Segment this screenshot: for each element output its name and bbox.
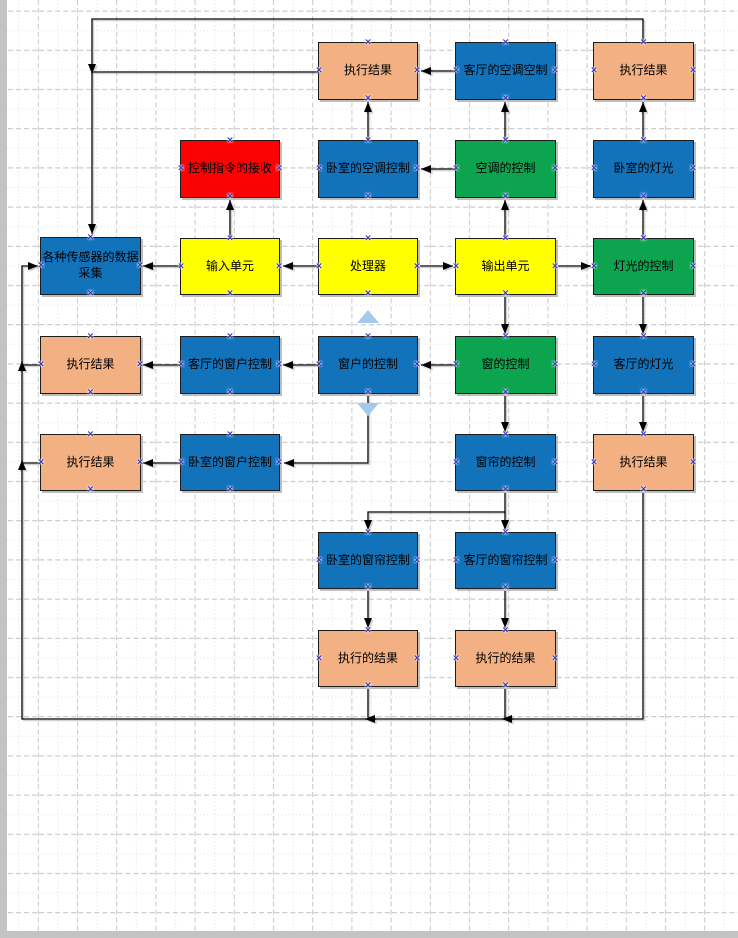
node-input-unit[interactable]: 输入单元×××× <box>180 238 280 295</box>
node-label: 客厅的窗户控制 <box>188 357 272 373</box>
node-bedroom-ac-control[interactable]: 卧室的空调控制×××× <box>318 140 418 198</box>
node-label: 执行结果 <box>66 455 114 471</box>
node-label: 执行的结果 <box>338 651 398 667</box>
node-ac-control[interactable]: 空调的控制×××× <box>455 140 556 198</box>
node-label: 输入单元 <box>206 259 254 275</box>
node-label: 卧室的窗帘控制 <box>326 553 410 569</box>
node-bedroom-window-control[interactable]: 卧室的窗户控制×××× <box>180 434 280 491</box>
node-exec-result-curtain[interactable]: 执行结果×××× <box>593 434 694 491</box>
node-living-window-control[interactable]: 客厅的窗户控制×××× <box>180 336 280 394</box>
node-living-light[interactable]: 客厅的灯光×××× <box>593 336 694 394</box>
drawing-page[interactable]: 执行结果××××客厅的空调空制××××执行结果××××控制指令的接收××××卧室… <box>0 0 738 938</box>
node-label: 执行结果 <box>344 63 392 79</box>
node-exec-result-window-living[interactable]: 执行结果×××× <box>40 336 141 394</box>
node-label: 执行结果 <box>619 63 667 79</box>
node-label: 客厅的窗帘控制 <box>463 553 547 569</box>
node-living-room-ac-control[interactable]: 客厅的空调空制×××× <box>455 42 556 100</box>
node-living-curtain-control[interactable]: 客厅的窗帘控制×××× <box>455 532 556 589</box>
node-label: 灯光的控制 <box>613 259 673 275</box>
node-exec-result-window-bedroom[interactable]: 执行结果×××× <box>40 434 141 491</box>
node-output-unit[interactable]: 输出单元×××× <box>455 238 556 295</box>
node-label: 控制指令的接收 <box>188 161 272 177</box>
node-bedroom-curtain-control[interactable]: 卧室的窗帘控制×××× <box>318 532 418 589</box>
node-label: 卧室的灯光 <box>613 161 673 177</box>
node-exec-result-ac-bedroom[interactable]: 执行结果×××× <box>318 42 418 100</box>
node-label: 执行的结果 <box>475 651 535 667</box>
node-processor[interactable]: 处理器×××× <box>318 238 418 295</box>
page-edge-left <box>0 0 7 938</box>
node-exec-result-living-curtain[interactable]: 执行的结果×××× <box>455 630 556 687</box>
page-edge-bottom <box>0 931 738 938</box>
node-bedroom-light[interactable]: 卧室的灯光×××× <box>593 140 694 198</box>
node-label: 处理器 <box>350 259 386 275</box>
node-label: 输出单元 <box>481 259 529 275</box>
node-label: 窗的控制 <box>481 357 529 373</box>
node-label: 各种传感器的数据 采集 <box>42 250 138 281</box>
node-exec-result-light-bedroom[interactable]: 执行结果×××× <box>593 42 694 100</box>
node-label: 窗户的控制 <box>338 357 398 373</box>
node-window-ctrl[interactable]: 窗的控制×××× <box>455 336 556 394</box>
node-exec-result-bedroom-curtain[interactable]: 执行的结果×××× <box>318 630 418 687</box>
node-label: 卧室的窗户控制 <box>188 455 272 471</box>
node-label: 客厅的空调空制 <box>463 63 547 79</box>
node-light-control[interactable]: 灯光的控制×××× <box>593 238 694 295</box>
node-label: 空调的控制 <box>475 161 535 177</box>
node-curtain-control[interactable]: 窗帘的控制×××× <box>455 434 556 491</box>
node-command-receiving[interactable]: 控制指令的接收×××× <box>180 140 280 198</box>
node-label: 执行结果 <box>619 455 667 471</box>
node-label: 卧室的空调控制 <box>326 161 410 177</box>
node-label: 客厅的灯光 <box>613 357 673 373</box>
node-label: 窗帘的控制 <box>475 455 535 471</box>
node-window-control[interactable]: 窗户的控制×××× <box>318 336 418 394</box>
node-sensor-data-collection[interactable]: 各种传感器的数据 采集×××× <box>40 237 141 295</box>
node-label: 执行结果 <box>66 357 114 373</box>
